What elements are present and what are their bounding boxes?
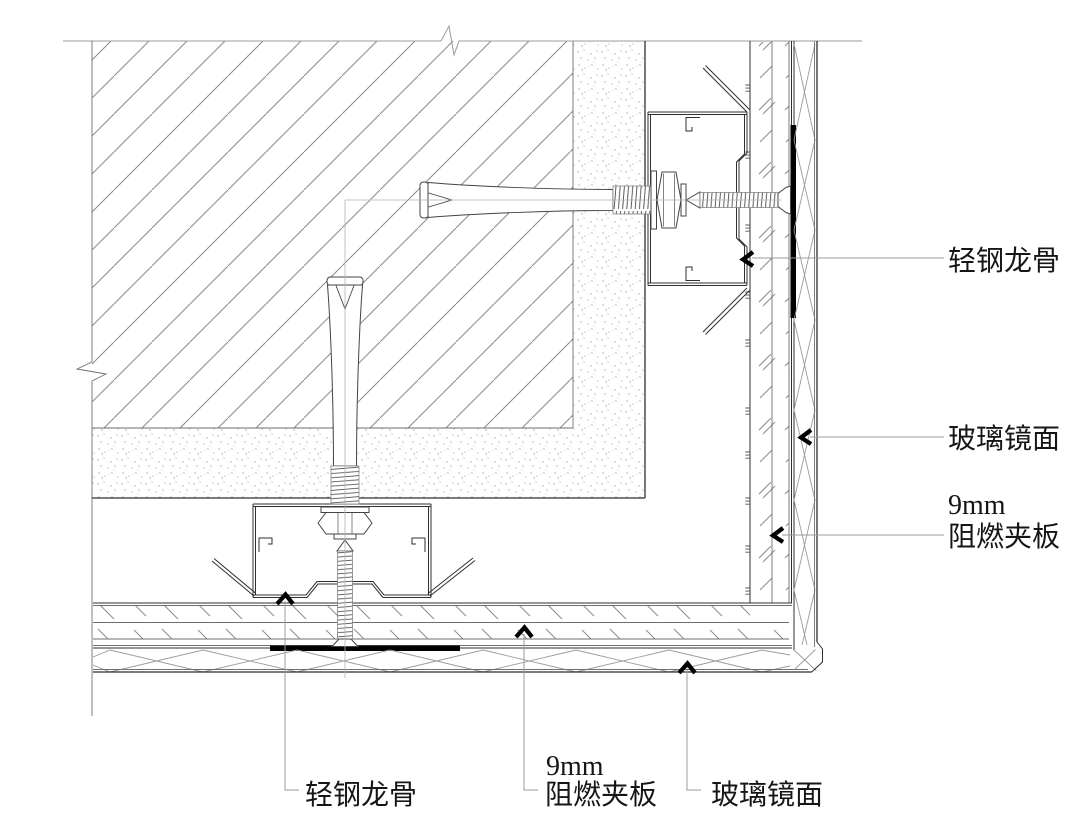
- right-glass-zigzag-a: [794, 44, 815, 645]
- annotation-bottom-board: 9mm 阻燃夹板: [516, 628, 657, 812]
- right-channel-top-web: [648, 112, 747, 115]
- label-right-board-name: 阻燃夹板: [948, 521, 1060, 553]
- label-right-keel: 轻钢龙骨: [948, 245, 1060, 277]
- label-right-mirror: 玻璃镜面: [948, 423, 1060, 455]
- construction-detail-drawing: 轻钢龙骨 玻璃镜面 9mm 阻燃夹板 轻钢龙骨 9mm 阻燃夹板 玻璃镜面: [0, 0, 1080, 831]
- label-bottom-keel: 轻钢龙骨: [305, 779, 417, 811]
- leader-line: [524, 634, 538, 790]
- bottom-plywood-hatch-2: [93, 622, 789, 639]
- label-bottom-mirror: 玻璃镜面: [711, 779, 823, 811]
- bottom-channel-top-web: [253, 504, 431, 507]
- detail-drawing-canvas: 轻钢龙骨 玻璃镜面 9mm 阻燃夹板 轻钢龙骨 9mm 阻燃夹板 玻璃镜面: [0, 0, 1080, 831]
- mirror-corner-chamfer: [812, 642, 823, 672]
- leader-arrow-icon: [801, 430, 811, 444]
- right-plywood-hatch-2: [772, 42, 789, 603]
- label-bottom-board-name: 阻燃夹板: [545, 779, 657, 811]
- label-right-board-size: 9mm: [948, 490, 1006, 521]
- bottom-plywood-hatch-1: [93, 606, 750, 622]
- right-finish-layers: [745, 41, 817, 650]
- right-plywood-hatch-1: [750, 42, 772, 603]
- right-glass-zigzag-b: [794, 44, 815, 645]
- bottom-channel-left-tab: [212, 559, 256, 597]
- bottom-channel-right-web: [429, 504, 432, 598]
- bottom-channel-left-web: [253, 504, 256, 598]
- bottom-finish-layers: [93, 603, 823, 672]
- fastening-tick-marks: [745, 85, 750, 594]
- leader-line: [687, 670, 701, 790]
- right-channel-bottom-tab: [703, 288, 750, 335]
- right-mirror-adhesive-pad: [791, 125, 797, 318]
- annotation-right-mirror: 玻璃镜面: [801, 423, 1060, 455]
- right-channel-bottom-web: [648, 283, 747, 286]
- annotation-bottom-mirror: 玻璃镜面: [679, 664, 823, 812]
- mirror-corner-miter-lines: [793, 649, 816, 671]
- right-channel-top-tab: [703, 66, 750, 113]
- bottom-channel-right-tab: [428, 558, 475, 596]
- bottom-channel-clip-right: [412, 538, 425, 552]
- label-bottom-board-size: 9mm: [546, 751, 604, 782]
- right-channel-clip-bottom: [686, 267, 700, 281]
- annotation-right-board: 9mm 阻燃夹板: [773, 490, 1060, 553]
- bottom-channel-clip-left: [259, 538, 272, 552]
- right-channel-clip-top: [686, 118, 700, 132]
